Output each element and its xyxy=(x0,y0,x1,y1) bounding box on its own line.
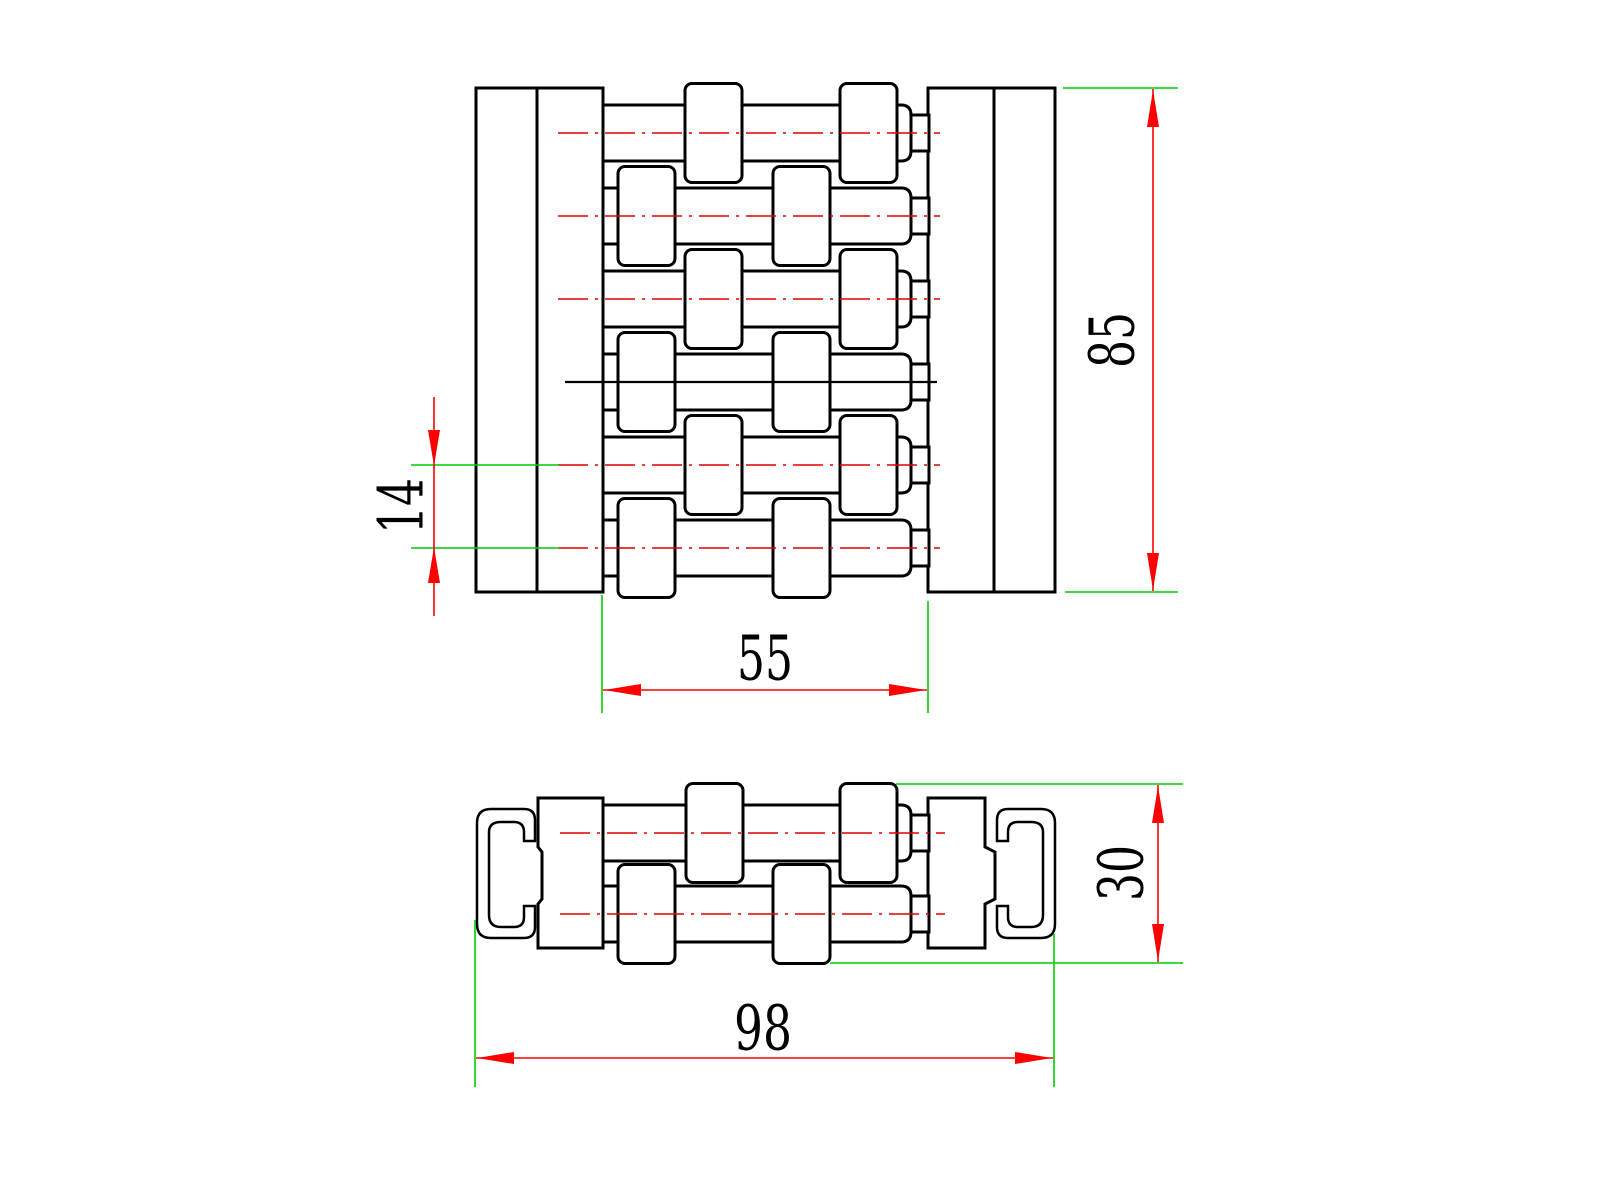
right-inner-plate xyxy=(928,88,994,592)
arrowhead xyxy=(1152,786,1164,823)
cad-technical-drawing: 85 14 55 30 xyxy=(0,0,1600,1200)
front-view xyxy=(476,84,1055,598)
side-view xyxy=(538,784,995,964)
left-link-block xyxy=(538,798,603,948)
arrowhead xyxy=(889,684,926,696)
dimension-85: 85 xyxy=(1063,88,1178,592)
right-link-block xyxy=(928,798,995,948)
arrowhead xyxy=(428,547,440,583)
arrowhead xyxy=(1152,924,1164,961)
arrowhead xyxy=(428,430,440,466)
dimension-label-85: 85 xyxy=(1076,312,1149,368)
dimension-55: 55 xyxy=(602,595,928,713)
arrowhead xyxy=(1147,90,1159,127)
left-inner-plate xyxy=(537,88,603,592)
dimension-label-55: 55 xyxy=(737,622,793,695)
arrowhead xyxy=(477,1052,514,1064)
right-outer-plate xyxy=(994,88,1055,592)
dimension-label-14: 14 xyxy=(365,478,438,534)
arrowhead xyxy=(1147,553,1159,590)
dimension-label-30: 30 xyxy=(1085,845,1158,901)
retaining-clip-right xyxy=(997,809,1055,938)
drawing-canvas: 85 14 55 30 xyxy=(0,0,1600,1200)
arrowhead xyxy=(1015,1052,1052,1064)
arrowhead xyxy=(604,684,641,696)
retaining-clip-left xyxy=(477,809,535,938)
left-outer-plate xyxy=(476,88,537,592)
dimension-label-98: 98 xyxy=(734,992,792,1065)
